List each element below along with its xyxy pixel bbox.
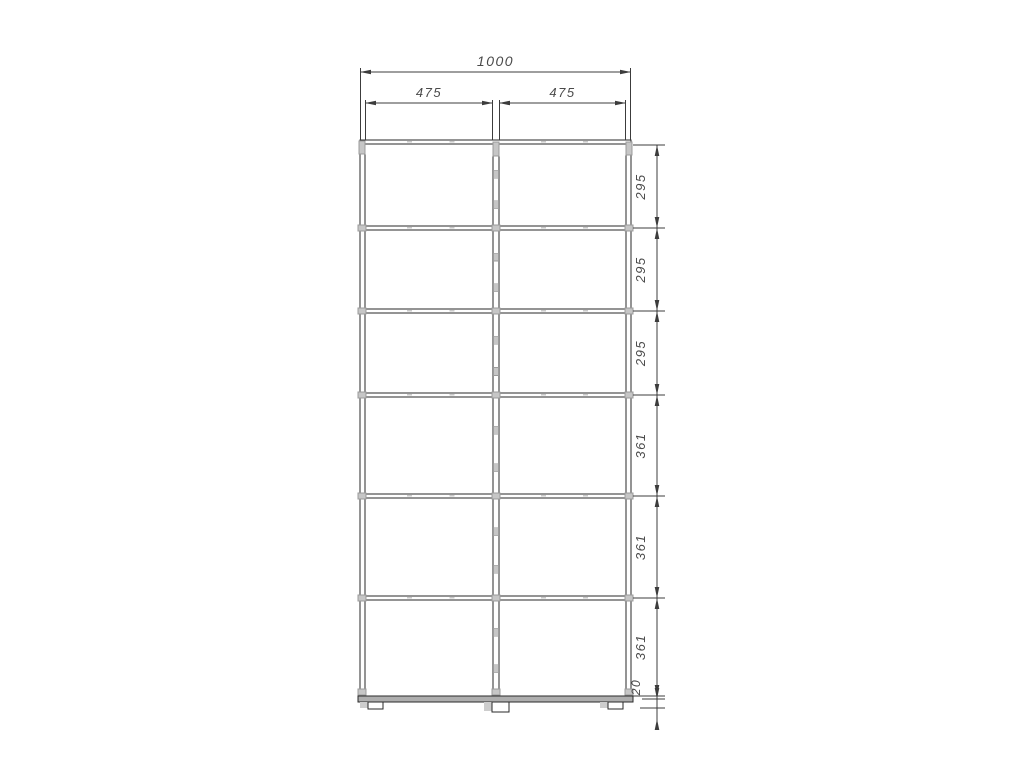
- connector: [625, 493, 633, 499]
- connector: [492, 308, 500, 314]
- edge-tick: [583, 227, 588, 229]
- edge-tick: [407, 227, 412, 229]
- connector: [625, 595, 633, 601]
- edge-tick: [541, 227, 546, 229]
- right-side-panel: [626, 140, 631, 702]
- edge-tick: [583, 394, 588, 396]
- connector: [358, 225, 366, 231]
- dim-plinth-text: 20: [629, 679, 643, 696]
- edge-tick: [541, 141, 546, 143]
- connector: [494, 201, 499, 209]
- edge-tick: [583, 310, 588, 312]
- dim-row-5-text: 361: [633, 534, 648, 560]
- connector: [358, 392, 366, 398]
- edge-tick: [541, 310, 546, 312]
- connector: [494, 170, 499, 178]
- edge-tick: [449, 141, 454, 143]
- connector: [625, 308, 633, 314]
- connector: [494, 665, 499, 673]
- connector: [494, 628, 499, 636]
- edge-tick: [541, 495, 546, 497]
- connector: [494, 336, 499, 344]
- dim-overall-width: 1000: [360, 53, 631, 140]
- connector: [492, 595, 500, 601]
- drawing-page: 100047547529529529536136136120: [0, 0, 1024, 768]
- technical-drawing: 100047547529529529536136136120: [0, 0, 1024, 768]
- left-side-panel: [360, 140, 365, 702]
- edge-tick: [407, 141, 412, 143]
- edge-tick: [449, 597, 454, 599]
- connector: [359, 141, 365, 154]
- edge-tick: [541, 597, 546, 599]
- edge-tick: [583, 141, 588, 143]
- connector: [358, 308, 366, 314]
- connector: [625, 225, 633, 231]
- edge-tick: [407, 597, 412, 599]
- foot-left: [368, 702, 383, 709]
- connector: [494, 284, 499, 292]
- connector: [494, 367, 499, 375]
- edge-tick: [449, 227, 454, 229]
- dim-row-6-text: 361: [633, 634, 648, 660]
- edge-tick: [449, 310, 454, 312]
- edge-tick: [407, 495, 412, 497]
- dim-row-3-text: 295: [633, 340, 648, 367]
- connector: [358, 493, 366, 499]
- connector: [494, 528, 499, 536]
- foot-center: [492, 702, 509, 712]
- cabinet-carcass: [358, 140, 633, 702]
- connector: [492, 689, 500, 695]
- edge-tick: [449, 394, 454, 396]
- edge-tick: [407, 394, 412, 396]
- feet: [360, 702, 623, 712]
- connector: [626, 142, 632, 155]
- base-panel: [358, 696, 633, 702]
- connector: [492, 493, 500, 499]
- edge-tick: [541, 394, 546, 396]
- connector: [494, 565, 499, 573]
- foot-right: [608, 702, 623, 709]
- edge-tick: [449, 495, 454, 497]
- dim-row-heights: 295295295361361361: [633, 145, 665, 722]
- edge-tick: [407, 310, 412, 312]
- dim-row-2-text: 295: [633, 256, 648, 283]
- dim-row-4-text: 361: [633, 432, 648, 458]
- connector: [492, 225, 500, 231]
- connector: [492, 392, 500, 398]
- dim-overall-width-text: 1000: [477, 53, 514, 69]
- dim-col-right-text: 475: [549, 85, 575, 100]
- connector: [358, 689, 366, 695]
- connector: [493, 142, 499, 156]
- dim-col-left-text: 475: [416, 85, 442, 100]
- connector: [494, 253, 499, 261]
- connector: [625, 392, 633, 398]
- dim-row-1-text: 295: [633, 173, 648, 200]
- connector: [494, 426, 499, 434]
- connector: [358, 595, 366, 601]
- dim-column-widths: 475475: [365, 85, 626, 140]
- connector: [494, 464, 499, 472]
- edge-tick: [583, 495, 588, 497]
- dim-plinth-height: 20: [629, 679, 665, 730]
- edge-tick: [583, 597, 588, 599]
